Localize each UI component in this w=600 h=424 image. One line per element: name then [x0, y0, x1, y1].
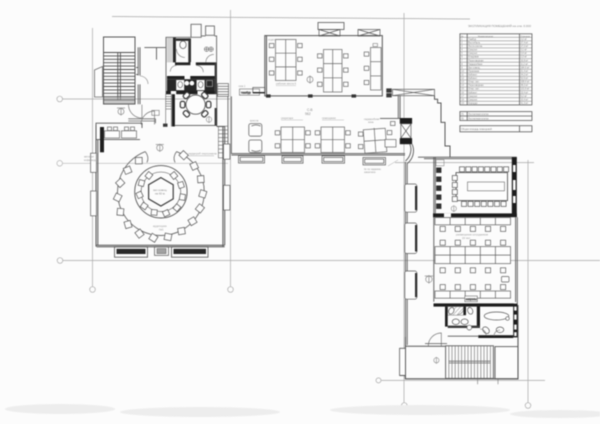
- svg-text:гардероб персонала: гардероб персонала: [188, 152, 217, 156]
- svg-text:Лестн.клетка: Лестн.клетка: [468, 46, 483, 48]
- svg-text:Гардеробная: Гардеробная: [468, 64, 483, 66]
- svg-text:Зал совещ.: Зал совещ.: [468, 67, 480, 69]
- svg-text:заказчика: заказчика: [364, 171, 376, 174]
- svg-text:38,2 м²: 38,2 м²: [521, 84, 529, 87]
- svg-text:Кабинет: Кабинет: [468, 92, 478, 94]
- svg-text:Переговорная: Переговорная: [468, 60, 484, 62]
- svg-text:секретари: секретари: [281, 117, 294, 120]
- svg-text:121,6 м²: 121,6 м²: [521, 88, 530, 91]
- svg-text:41,3 м²: 41,3 м²: [521, 102, 529, 105]
- svg-text:размещение сотрудников: размещение сотрудников: [456, 234, 488, 237]
- svg-text:3,1 м²: 3,1 м²: [521, 49, 527, 52]
- svg-text:на 60 м.: на 60 м.: [155, 192, 166, 196]
- svg-text:Наименование: Наименование: [478, 36, 494, 38]
- svg-text:962: 962: [305, 112, 311, 116]
- svg-text:ЭКСПЛИКАЦИЯ ПОМЕЩЕНИЙ на отм.: ЭКСПЛИКАЦИЯ ПОМЕЩЕНИЙ на отм. 0.000: [468, 24, 531, 28]
- svg-text:пом.1: пом.1: [239, 84, 246, 88]
- svg-text:Лестничная клетка: Лестничная клетка: [468, 114, 489, 116]
- svg-text:тамбур: тамбур: [241, 91, 251, 95]
- svg-text:Санузел: Санузел: [468, 96, 478, 98]
- svg-text:Санузел: Санузел: [468, 50, 478, 52]
- svg-text:Коридор: Коридор: [468, 103, 478, 105]
- svg-text:27,4 м²: 27,4 м²: [521, 42, 529, 45]
- svg-text:108,4 м²: 108,4 м²: [521, 81, 530, 84]
- svg-text:кресла: кресла: [250, 120, 259, 123]
- svg-text:3,2 м²: 3,2 м²: [521, 38, 527, 41]
- svg-text:184,6 м²: 184,6 м²: [521, 66, 530, 69]
- svg-text:кофе-вода: кофе-вода: [84, 158, 98, 162]
- svg-text:помощники: помощники: [322, 117, 336, 120]
- svg-text:11,2 м²: 11,2 м²: [521, 63, 529, 66]
- svg-text:Санузел: Санузел: [468, 53, 478, 55]
- svg-text:17,2 м²: 17,2 м²: [521, 45, 529, 48]
- svg-text:санузлы: санузлы: [466, 297, 477, 301]
- svg-text:9,2 м²: 9,2 м²: [521, 95, 527, 98]
- svg-text:16,8 м²: 16,8 м²: [521, 59, 529, 62]
- svg-text:№1: №1: [159, 228, 164, 232]
- svg-text:10,4 м²: 10,4 м²: [521, 98, 529, 101]
- svg-text:3,4 м²: 3,4 м²: [521, 52, 527, 55]
- svg-text:16 чел.: 16 чел.: [462, 236, 471, 240]
- svg-text:2,3 м²: 2,3 м²: [521, 56, 527, 59]
- svg-text:Опер. зал: Опер. зал: [468, 89, 479, 91]
- svg-text:рабочие места 6: рабочие места 6: [276, 82, 297, 86]
- svg-text:Площадь: Площадь: [521, 36, 531, 38]
- svg-text:зона: зона: [368, 121, 374, 124]
- svg-text:21,4 м²: 21,4 м²: [521, 70, 529, 73]
- svg-text:52,6 м²: 52,6 м²: [521, 77, 529, 80]
- svg-text:Кабинет: Кабинет: [468, 74, 478, 76]
- svg-text:Общая площадь помещений: Общая площадь помещений: [461, 128, 492, 131]
- svg-text:Вестибюль: Вестибюль: [468, 43, 481, 45]
- svg-text:Санузел: Санузел: [468, 99, 478, 101]
- svg-text:Переговорная: Переговорная: [468, 85, 484, 87]
- svg-text:23,4 м²: 23,4 м²: [521, 91, 529, 94]
- svg-text:Приемная: Приемная: [468, 71, 480, 73]
- svg-text:Тамбур: Тамбур: [468, 39, 477, 41]
- svg-text:Кладовая: Кладовая: [468, 57, 479, 59]
- svg-text:Опер. зал: Опер. зал: [468, 82, 479, 84]
- svg-text:Кабинет: Кабинет: [468, 78, 478, 80]
- svg-text:Лестничная клетка: Лестничная клетка: [468, 119, 489, 121]
- svg-text:34,2 м²: 34,2 м²: [521, 73, 529, 76]
